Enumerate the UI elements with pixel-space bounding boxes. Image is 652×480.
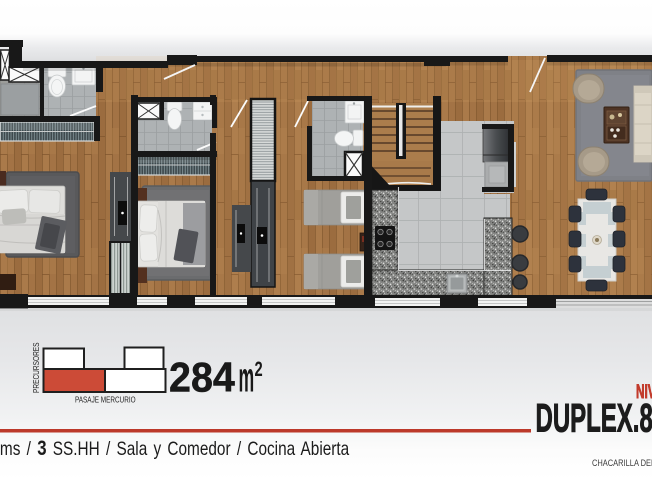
svg-text:Dorms / 3 SS.HH / Sala y Comed: Dorms / 3 SS.HH / Sala y Comedor / Cocin… bbox=[0, 437, 349, 460]
svg-text:DUPLEX.80: DUPLEX.80 bbox=[536, 395, 652, 440]
svg-text:CHACARILLA DEL ESTANQUE: CHACARILLA DEL ESTANQUE bbox=[592, 457, 652, 468]
svg-text:284: 284 bbox=[169, 353, 235, 400]
svg-text:2: 2 bbox=[255, 357, 263, 380]
svg-text:PRECURSORES: PRECURSORES bbox=[31, 342, 41, 393]
svg-text:PASAJE MERCURIO: PASAJE MERCURIO bbox=[75, 395, 136, 405]
svg-text:m: m bbox=[239, 354, 255, 401]
